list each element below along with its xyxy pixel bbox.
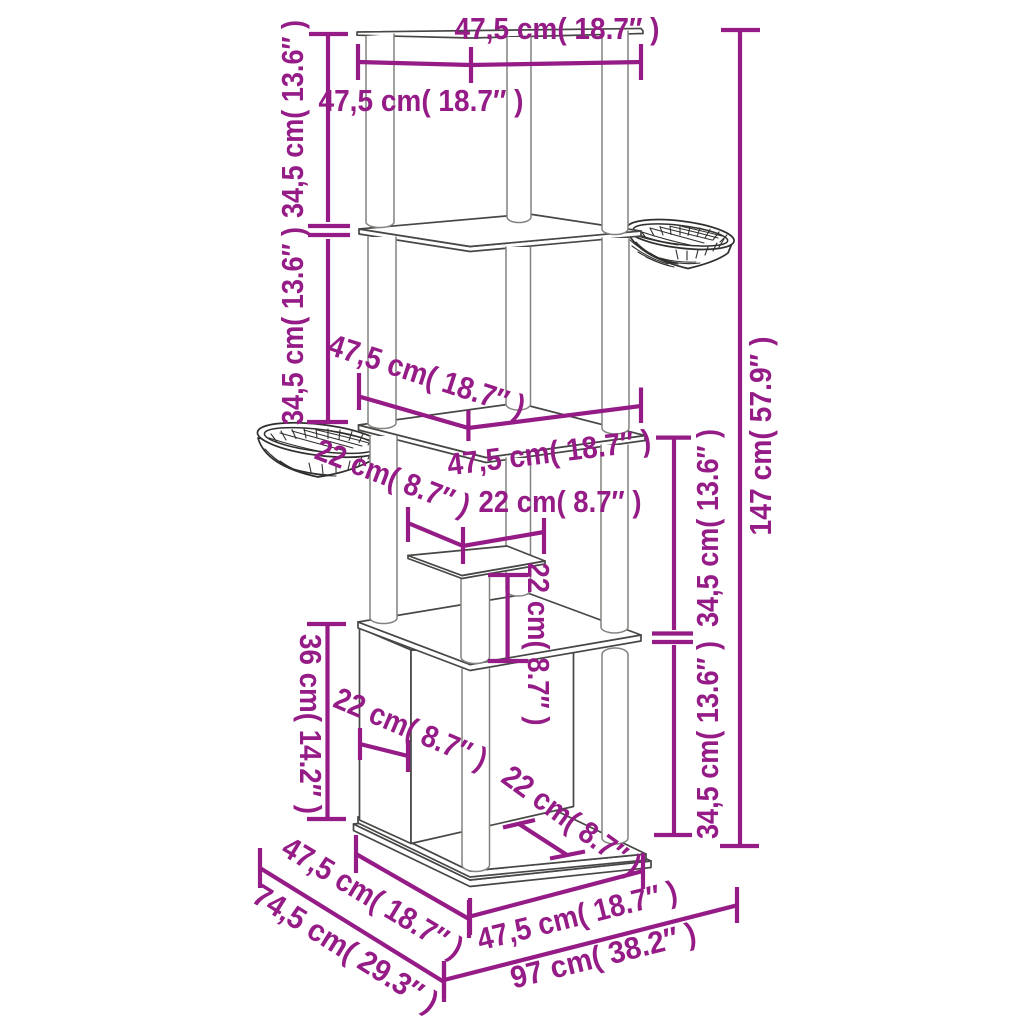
svg-text:36 cm( 14.2″ ): 36 cm( 14.2″ ) xyxy=(293,634,328,814)
svg-text:34,5 cm( 13.6″ ): 34,5 cm( 13.6″ ) xyxy=(275,227,310,425)
svg-text:22 cm( 8.7″ ): 22 cm( 8.7″ ) xyxy=(521,563,556,726)
svg-text:22 cm( 8.7″ ): 22 cm( 8.7″ ) xyxy=(479,484,642,519)
svg-text:147 cm( 57.9″ ): 147 cm( 57.9″ ) xyxy=(743,337,778,536)
svg-text:34,5 cm( 13.6″ ): 34,5 cm( 13.6″ ) xyxy=(275,20,310,218)
svg-text:34,5 cm( 13.6″ ): 34,5 cm( 13.6″ ) xyxy=(690,641,725,839)
svg-text:47,5 cm( 18.7″ ): 47,5 cm( 18.7″ ) xyxy=(455,11,660,46)
svg-text:47,5 cm( 18.7″ ): 47,5 cm( 18.7″ ) xyxy=(319,83,524,118)
svg-text:34,5 cm( 13.6″ ): 34,5 cm( 13.6″ ) xyxy=(690,429,725,627)
